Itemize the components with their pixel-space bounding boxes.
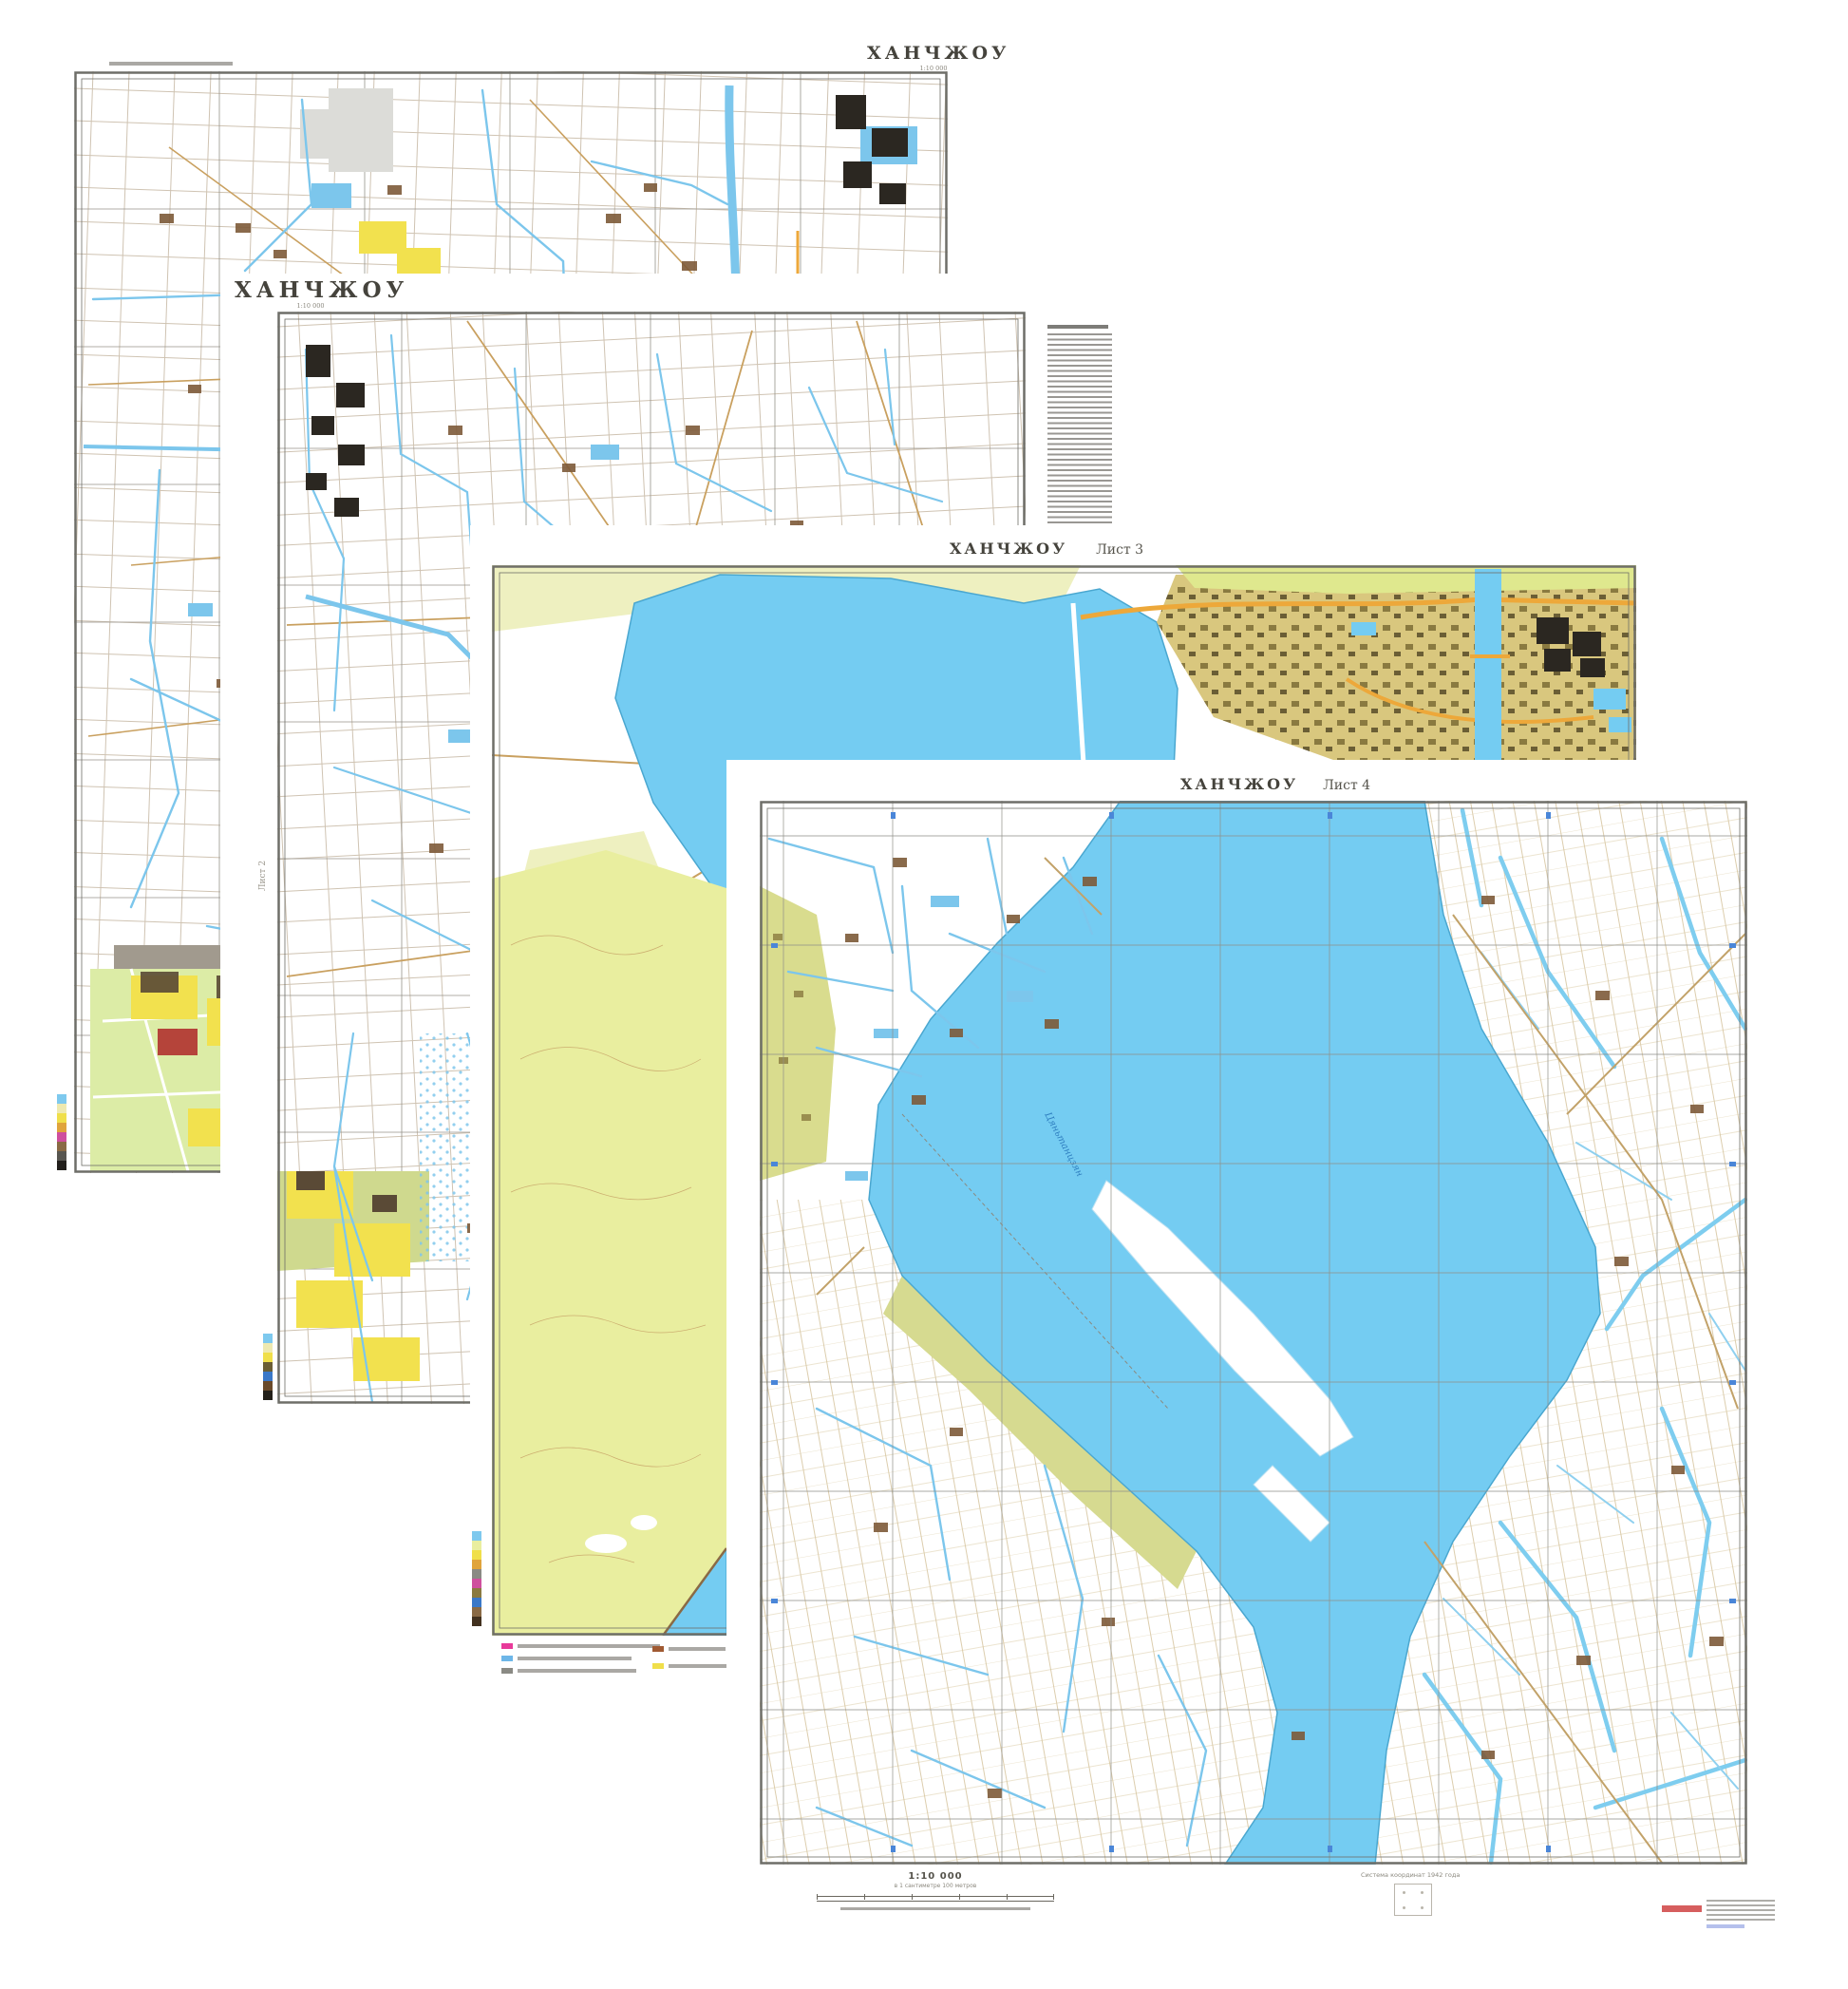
legend-text [518,1669,636,1673]
legend-row [652,1646,726,1652]
calibration-swatch [57,1161,66,1170]
sheet3-sheet-label: Лист 3 [1096,542,1143,558]
sheet1-title: ХАНЧЖОУ [867,43,1009,64]
scale-text: 1:10 000 [817,1871,1054,1882]
sheet2-side-label: Лист 2 [258,861,268,891]
sheet2-title: ХАНЧЖОУ [235,277,408,303]
calibration-swatch [263,1391,273,1400]
calibration-swatch [57,1094,66,1104]
sheet4-sheet-label: Лист 4 [1323,778,1370,793]
legend-row [501,1668,636,1674]
watermark-link [1707,1924,1744,1928]
calibration-swatch [57,1123,66,1132]
calibration-swatch [263,1381,273,1391]
sheet3-title: ХАНЧЖОУ [950,540,1067,558]
sheet2-subtitle: 1:10 000 [258,302,363,310]
scale-subtext: в 1 сантиметре 100 метров [817,1883,1054,1889]
legend-swatch [652,1663,664,1669]
watermark-text [1707,1900,1775,1923]
calibration-swatch [57,1113,66,1123]
page: ХАНЧЖОУ 1:10 000 [0,0,1848,1989]
calibration-swatch [263,1353,273,1362]
calibration-swatch [472,1531,481,1541]
calibration-swatch [472,1569,481,1579]
legend-swatch [652,1646,664,1652]
calibration-swatch [57,1151,66,1161]
legend-swatch [501,1643,513,1649]
scale-bar-note [840,1907,1030,1910]
calibration-swatch [472,1607,481,1617]
sheet2-color-calibration-bar [263,1334,273,1400]
sheet1-color-calibration-bar [57,1094,66,1170]
legend-swatch [501,1656,513,1661]
sheet4-map: Цяньтанцзян [760,801,1747,1865]
calibration-swatch [57,1104,66,1113]
calibration-swatch [472,1617,481,1626]
legend-row [501,1643,660,1649]
corner-stamp-icon [1394,1884,1432,1916]
calibration-swatch [263,1343,273,1353]
calibration-swatch [472,1541,481,1550]
legend-row [501,1656,632,1661]
legend-text [669,1647,726,1651]
calibration-swatch [263,1372,273,1381]
coordinate-system-note: Система координат 1942 года [1361,1871,1460,1879]
sheet1-margin-note [109,62,233,66]
sheet2-index-header [1047,325,1108,329]
calibration-swatch [472,1560,481,1569]
calibration-swatch [472,1550,481,1560]
watermark-logo-icon [1662,1905,1702,1912]
calibration-swatch [472,1588,481,1598]
calibration-swatch [263,1334,273,1343]
map-sheet-4: ХАНЧЖОУ Лист 4 [726,760,1795,1947]
sheet4-title: ХАНЧЖОУ [1180,775,1298,793]
legend-text [518,1644,660,1648]
calibration-swatch [57,1132,66,1142]
calibration-swatch [472,1579,481,1588]
scale-bar [817,1896,1054,1902]
legend-row [652,1663,731,1669]
calibration-swatch [472,1598,481,1607]
calibration-swatch [263,1362,273,1372]
legend-text [669,1664,731,1668]
scale-block: 1:10 000 в 1 сантиметре 100 метров [817,1871,1054,1889]
legend-text [518,1657,632,1660]
legend-swatch [501,1668,513,1674]
sheet3-color-calibration-bar [472,1531,481,1626]
calibration-swatch [57,1142,66,1151]
